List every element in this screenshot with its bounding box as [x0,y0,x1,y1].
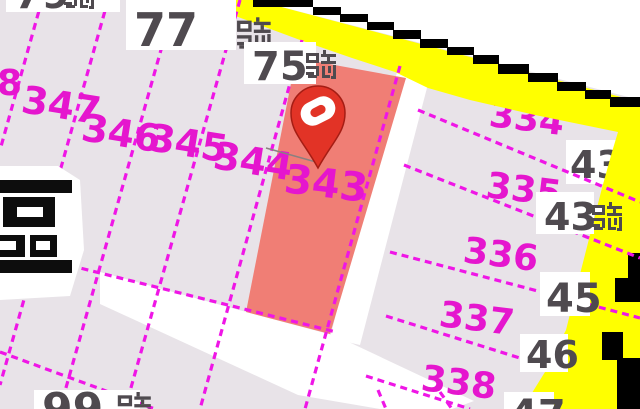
address-label-75: 75 [252,44,308,90]
map-canvas[interactable]: 334 43 [0,0,640,409]
address-label-99: 99 [42,384,103,409]
address-label-45: 45 [546,276,602,322]
parcel-label-348-partial: 8 [0,63,22,104]
address-label-79: 79 [14,0,70,18]
address-label-46: 46 [526,333,579,377]
cadastral-map: 334 43 [0,0,640,409]
address-label-77: 77 [134,3,198,57]
address-label-43: 43 [544,195,597,239]
address-label-47: 47 [510,392,566,409]
